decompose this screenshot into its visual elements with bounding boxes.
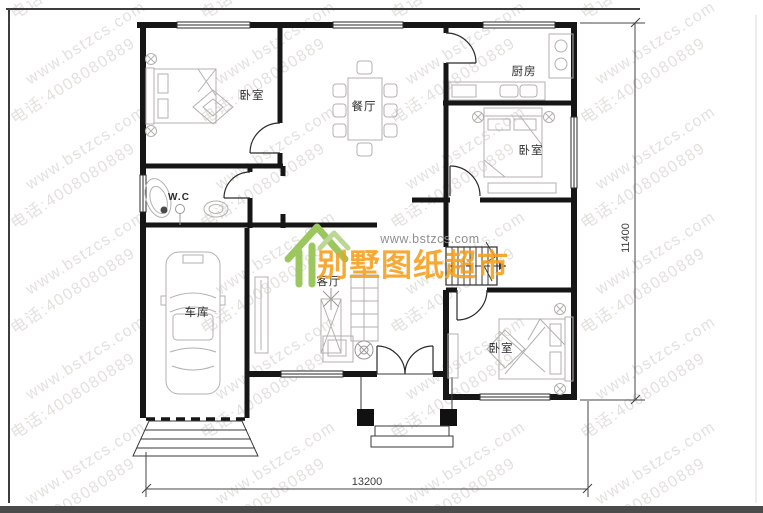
floor-plan-page: www.bstzcs.com电话:4008080889www.bstzcs.co… [0,0,763,513]
logo: www.bstzcs.com 别墅图纸超市 [288,227,509,284]
porch-step [371,436,453,447]
bed-top-left [146,54,234,137]
porch-column [357,409,374,426]
room-label-garage: 车库 [185,305,210,319]
window [281,371,343,377]
dimension-height-label: 11400 [620,223,632,253]
room-label-dining: 餐厅 [352,99,377,113]
window [483,22,555,28]
window [571,117,577,188]
window [333,22,403,28]
logo-title: 别墅图纸超市 [317,248,509,283]
room-label-bedroom-right: 卧室 [519,143,544,157]
room-label-bedroom-bottom: 卧室 [489,341,514,355]
toilet-icon [176,205,185,214]
porch-column [440,409,457,426]
floor-drain-icon [161,207,168,214]
garage-ramp [133,421,258,456]
room-label-bedroom-top-left: 卧室 [240,88,265,102]
window [480,394,550,400]
bottom-bar [0,506,763,513]
entry-porch [357,374,457,447]
logo-url: www.bstzcs.com [379,232,479,246]
room-label-kitchen: 厨房 [512,65,537,78]
entry-double-door [377,346,433,374]
room-label-wc: W.C [168,192,190,203]
floor-plan-svg: www.bstzcs.com电话:4008080889www.bstzcs.co… [0,0,763,513]
window [177,22,250,28]
dimension-width-label: 13200 [352,476,383,488]
